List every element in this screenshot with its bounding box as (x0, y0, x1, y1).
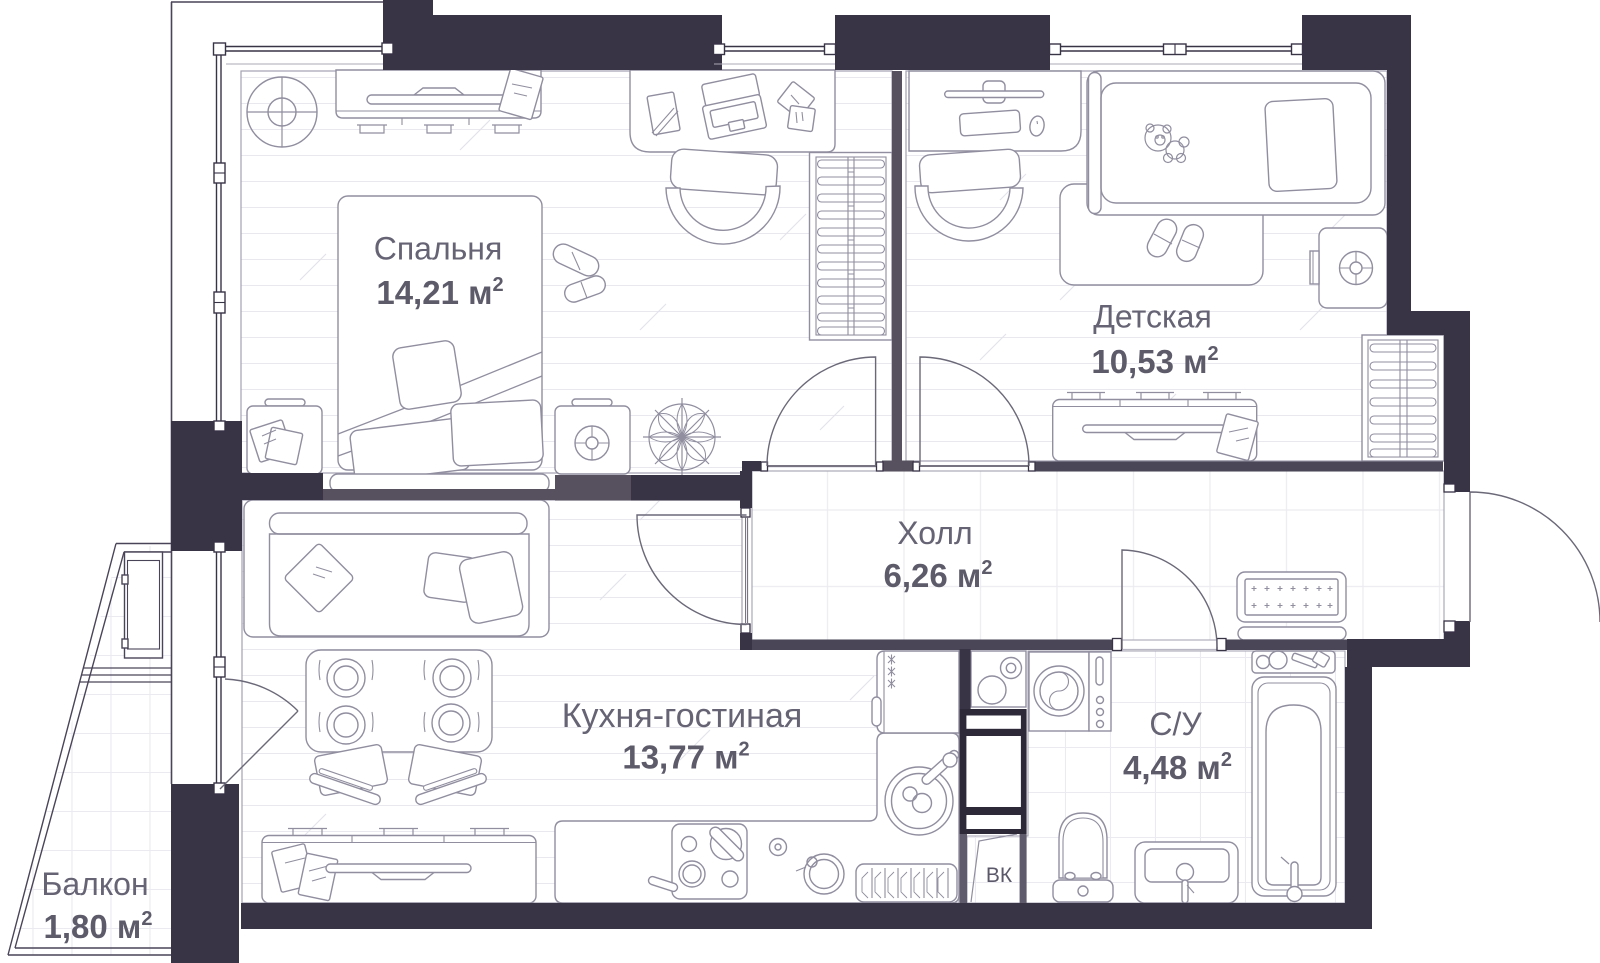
svg-text:Балкон: Балкон (41, 866, 148, 902)
svg-text:Холл: Холл (897, 515, 972, 551)
svg-text:6,26 м2: 6,26 м2 (884, 557, 993, 594)
svg-text:С/У: С/У (1149, 706, 1202, 742)
svg-text:Спальня: Спальня (374, 231, 503, 267)
svg-text:14,21 м2: 14,21 м2 (376, 274, 503, 311)
svg-text:10,53 м2: 10,53 м2 (1091, 343, 1218, 380)
svg-text:13,77 м2: 13,77 м2 (622, 739, 749, 776)
svg-text:ВК: ВК (986, 864, 1013, 887)
svg-text:1,80 м2: 1,80 м2 (44, 908, 153, 945)
svg-text:4,48 м2: 4,48 м2 (1123, 749, 1232, 786)
svg-text:Кухня-гостиная: Кухня-гостиная (562, 697, 803, 735)
svg-text:Детская: Детская (1093, 299, 1212, 335)
